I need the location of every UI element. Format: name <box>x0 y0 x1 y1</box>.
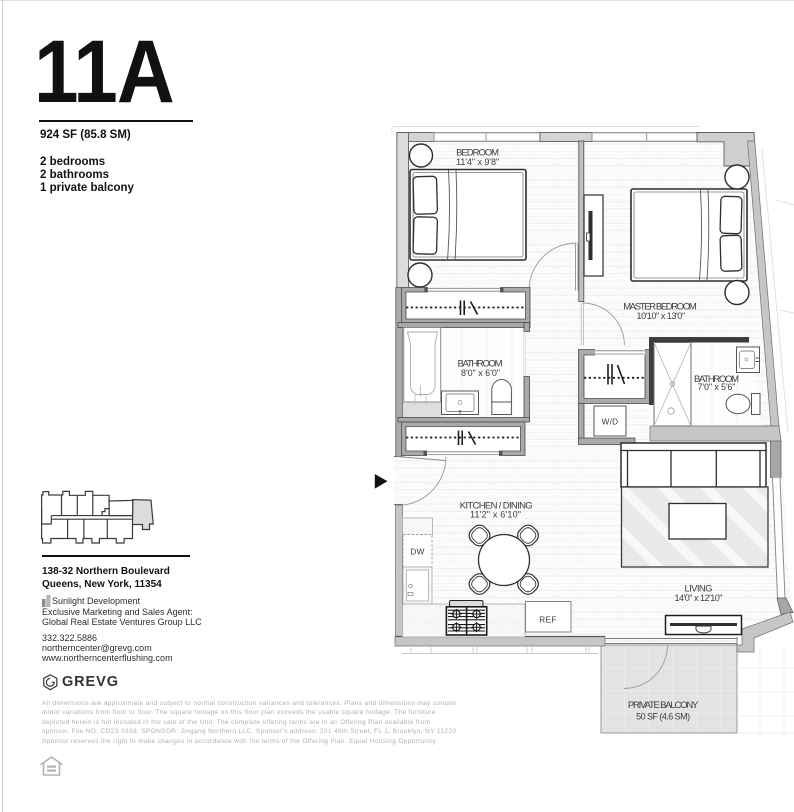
svg-text:REF: REF <box>539 616 557 625</box>
svg-text:7'0" x 5'6": 7'0" x 5'6" <box>698 382 736 392</box>
svg-text:10'10" x 13'0": 10'10" x 13'0" <box>637 311 686 321</box>
svg-text:11'2" x 6'10": 11'2" x 6'10" <box>470 510 521 520</box>
svg-text:14'0" x 12'10": 14'0" x 12'10" <box>675 593 723 603</box>
svg-text:W/D: W/D <box>602 418 619 427</box>
svg-text:11'4" x 9'8": 11'4" x 9'8" <box>456 157 499 167</box>
svg-text:8'0" x 6'0": 8'0" x 6'0" <box>461 368 500 378</box>
svg-text:PRIVATE BALCONY: PRIVATE BALCONY <box>628 700 699 711</box>
svg-text:DW: DW <box>410 548 424 557</box>
svg-text:50 SF (4.6 SM): 50 SF (4.6 SM) <box>636 711 690 721</box>
